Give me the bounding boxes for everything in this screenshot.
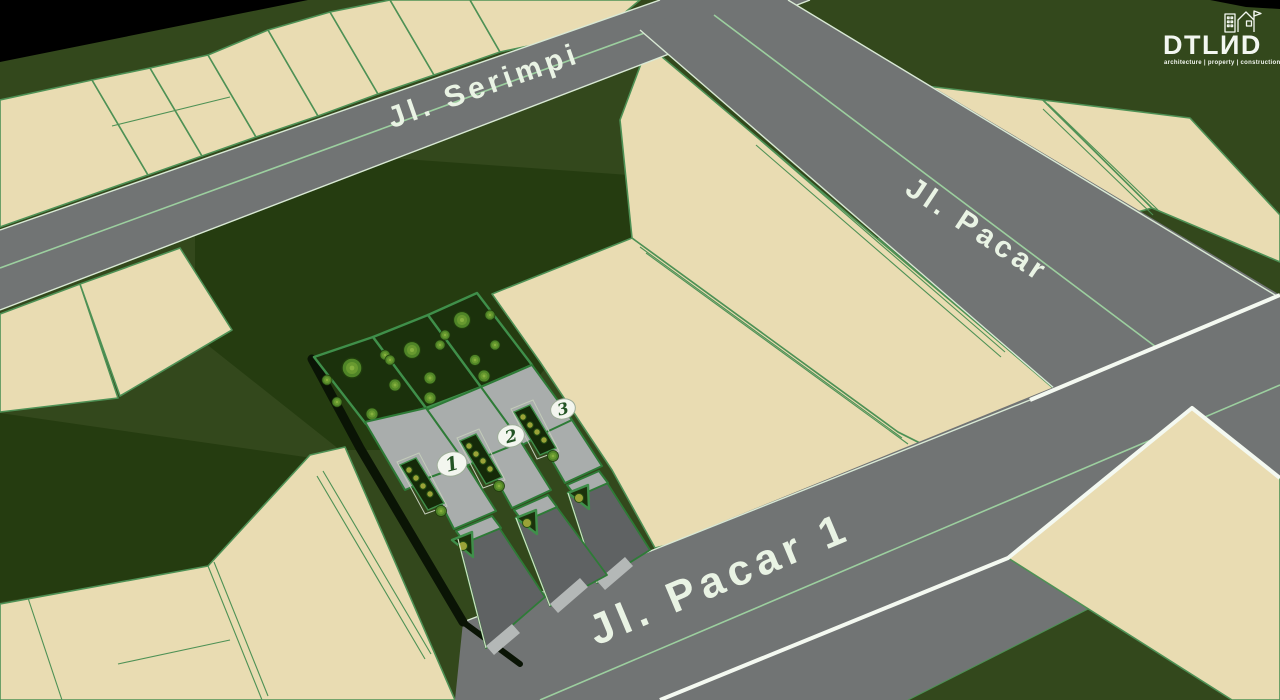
plant-icon [473,451,479,457]
plant-icon [487,466,493,472]
logo-tagline: architecture | property | construction [1164,60,1280,66]
tree-icon [342,358,362,378]
plant-icon [541,437,547,443]
plant-icon [420,483,426,489]
plant-icon [527,422,533,428]
plant-icon [520,414,526,420]
tree-icon [548,451,559,462]
plant-icon [427,491,433,497]
tree-icon [436,506,447,517]
tree-icon [404,342,421,359]
plant-icon [406,467,412,473]
tree-icon [322,375,332,385]
siteplan-render: 1 2 3 Jl. Serimpi Jl. Pacar Jl. Pacar 1 [0,0,1280,700]
tree-icon [440,330,450,340]
plant-icon [466,443,472,449]
tree-icon [485,310,495,320]
tree-icon [424,392,436,404]
tree-icon [494,481,505,492]
tree-icon [389,379,401,391]
plant-icon [413,475,419,481]
plant-icon [534,429,540,435]
tree-icon [366,408,378,420]
tree-icon [490,340,500,350]
plant-icon [480,458,486,464]
tree-icon [454,312,471,329]
plant-icon [575,494,584,503]
tree-icon [478,370,490,382]
logo-wordmark: DTLИD [1163,30,1262,60]
tree-icon [470,355,481,366]
tree-icon [435,340,445,350]
tree-icon [332,397,342,407]
tree-icon [385,355,395,365]
plant-icon [523,519,532,528]
tree-icon [424,372,436,384]
